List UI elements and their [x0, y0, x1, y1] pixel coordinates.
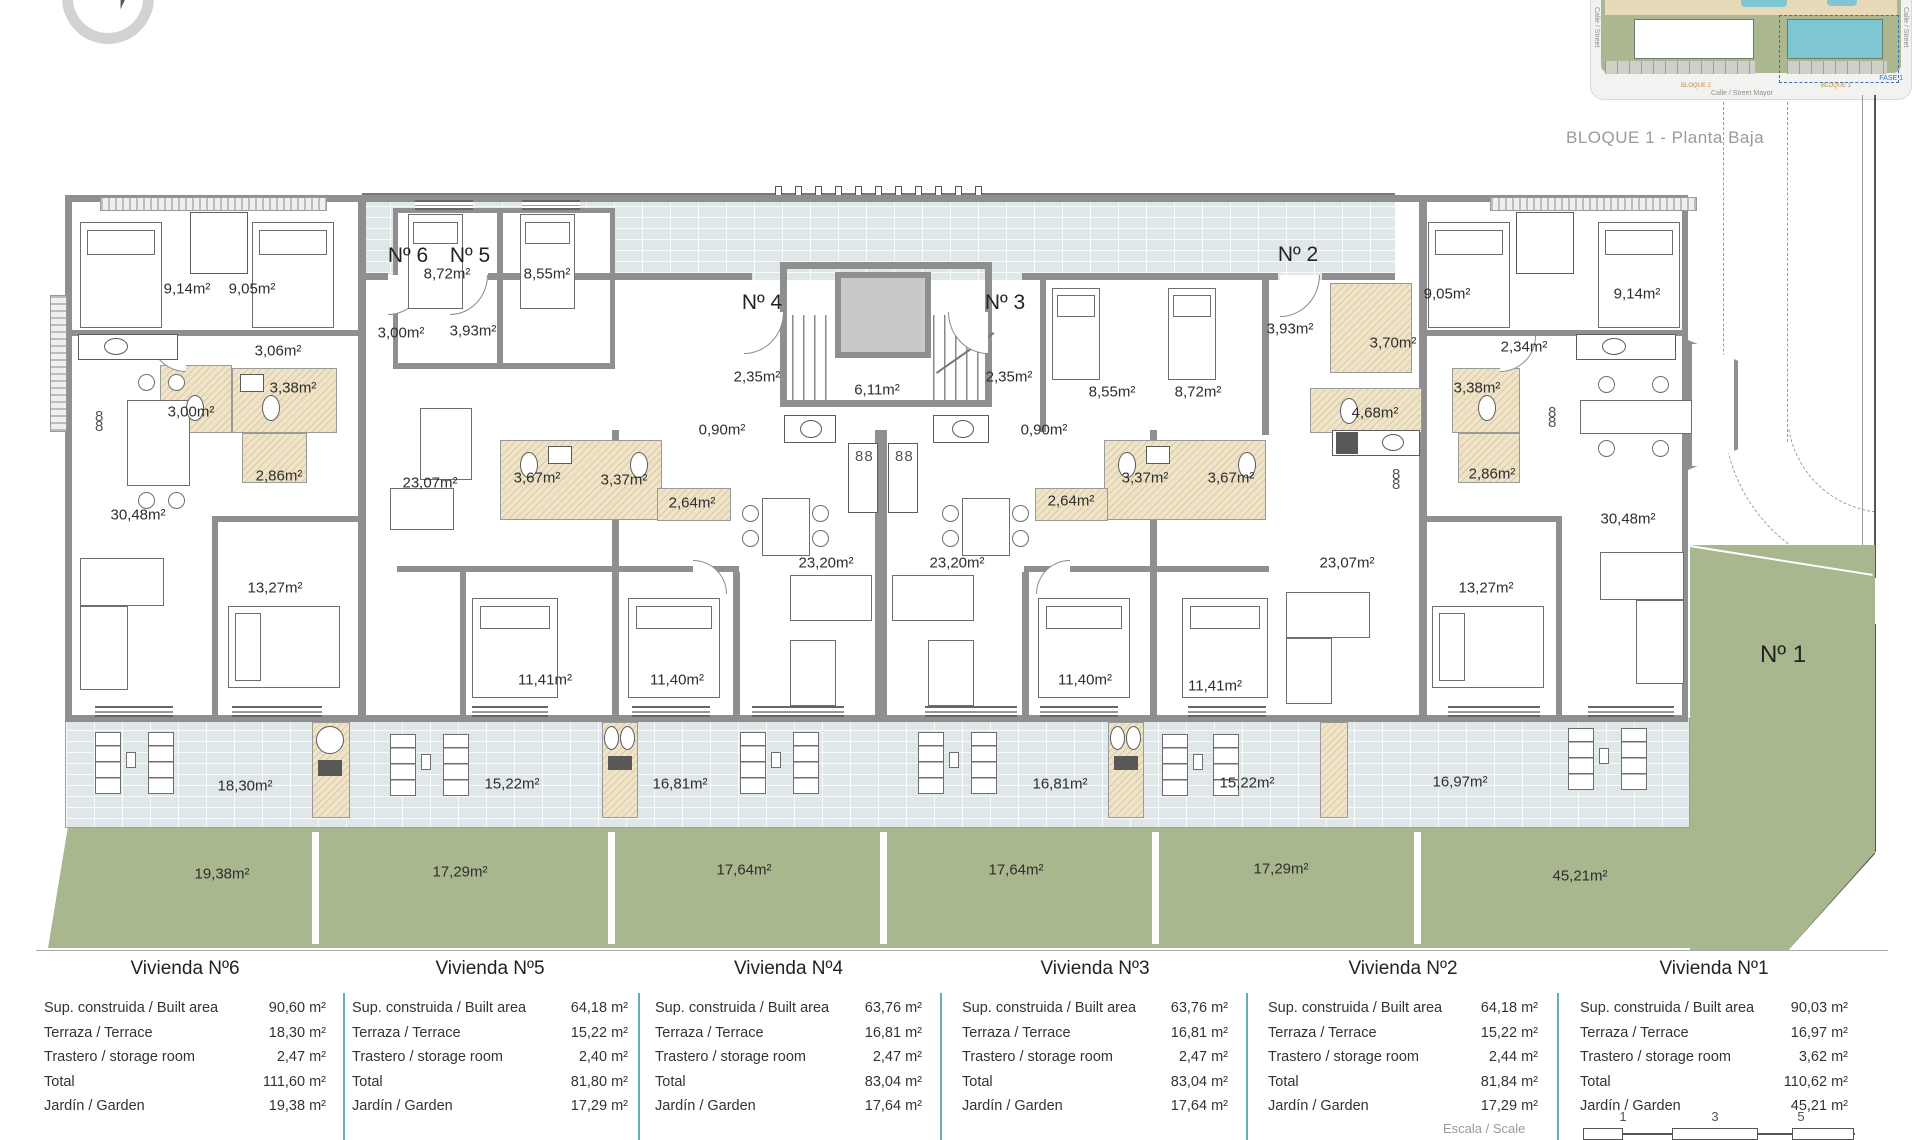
divider-line: [36, 950, 1888, 951]
table-row: Terraza / Terrace18,30 m²: [44, 1021, 326, 1046]
table-column-header: Vivienda Nº2: [1268, 958, 1538, 980]
table-row: Jardín / Garden17,64 m²: [962, 1094, 1228, 1119]
bloque1-label: BLOQUE 1: [1821, 83, 1851, 89]
street-left-label: Calle / Street: [1593, 7, 1600, 47]
bed: [1432, 606, 1544, 688]
road-dashed-line: [1787, 102, 1788, 442]
room-area-label: 11,41m²: [1188, 678, 1242, 695]
row-value: 81,84 m²: [1481, 1070, 1538, 1095]
table-row: Trastero / storage room3,62 m²: [1580, 1045, 1848, 1070]
scale-segment: [1672, 1128, 1758, 1140]
room-area-label: 3,67m²: [1208, 470, 1255, 487]
shutter-band: [1490, 197, 1697, 211]
row-label: Jardín / Garden: [1268, 1094, 1369, 1119]
scale-label: Escala / Scale: [1443, 1121, 1525, 1136]
room-area-label: 30,48m²: [1600, 511, 1655, 528]
bay-window: [1688, 340, 1738, 470]
room-area-label: 16,81m²: [1032, 776, 1087, 793]
row-value: 15,22 m²: [571, 1021, 628, 1046]
wall: [212, 522, 218, 715]
row-value: 2,47 m²: [873, 1045, 922, 1070]
table-row: Jardín / Garden19,38 m²: [44, 1094, 326, 1119]
row-value: 83,04 m²: [865, 1070, 922, 1095]
wall: [1022, 273, 1278, 280]
room-area-label: 0,90m²: [1021, 422, 1068, 439]
table-row: Trastero / storage room2,44 m²: [1268, 1045, 1538, 1070]
wall: [615, 566, 739, 572]
sofa: [80, 606, 128, 690]
row-value: 83,04 m²: [1171, 1070, 1228, 1095]
appliance-icon: [1114, 756, 1138, 770]
washer-icon: [1126, 726, 1141, 750]
row-value: 64,18 m²: [571, 996, 628, 1021]
unit-number-label: Nº 1: [1760, 641, 1806, 669]
street-right-label: Calle / Street: [1902, 7, 1909, 47]
row-value: 17,29 m²: [571, 1094, 628, 1119]
appliance-icon: [318, 760, 342, 776]
table-column-header: Vivienda Nº6: [44, 958, 326, 980]
table-divider: [1557, 993, 1559, 1140]
table-row: Sup. construida / Built area64,18 m²: [1268, 996, 1538, 1021]
row-label: Trastero / storage room: [962, 1045, 1113, 1070]
table-row: Jardín / Garden17,29 m²: [1268, 1094, 1538, 1119]
window: [1040, 706, 1118, 717]
row-label: Jardín / Garden: [352, 1094, 453, 1119]
table-row: Jardín / Garden17,64 m²: [655, 1094, 922, 1119]
room-area-label: 8,72m²: [1175, 384, 1222, 401]
unit-number-label: Nº 2: [1278, 243, 1318, 267]
floorplan-sheet: FASE 1 BLOQUE 2 BLOQUE 1 Calle / Street …: [0, 0, 1920, 1140]
bed: [1168, 288, 1216, 380]
basin-icon: [240, 374, 264, 392]
cooktop-icon: 88: [95, 412, 104, 432]
table-row: Trastero / storage room2,40 m²: [352, 1045, 628, 1070]
table-divider: [1246, 993, 1248, 1140]
table-column-header: Vivienda Nº4: [655, 958, 922, 980]
wall: [1322, 273, 1395, 280]
room-area-label: 6,11m²: [854, 382, 900, 399]
row-label: Sup. construida / Built area: [1268, 996, 1442, 1021]
sofa: [790, 640, 836, 706]
row-value: 16,81 m²: [1171, 1021, 1228, 1046]
pool-shape: [1741, 0, 1787, 7]
wall: [1157, 566, 1269, 572]
row-label: Sup. construida / Built area: [1580, 996, 1754, 1021]
window: [1188, 706, 1266, 717]
washer-icon: [1110, 726, 1125, 750]
bed: [1598, 222, 1680, 328]
garden-right-wrap: [1690, 545, 1875, 950]
cooktop-icon: 88: [855, 452, 874, 462]
wall: [1419, 202, 1427, 715]
window: [95, 706, 173, 717]
table-row: Total81,84 m²: [1268, 1070, 1538, 1095]
room-area-label: 2,34m²: [1501, 339, 1548, 356]
room-area-label: 19,38m²: [194, 866, 249, 883]
row-label: Trastero / storage room: [44, 1045, 195, 1070]
toilet-icon: [1478, 395, 1496, 421]
room-area-label: 3,38m²: [1454, 380, 1501, 397]
wall: [1556, 522, 1562, 715]
cooktop-icon: 88: [1548, 408, 1557, 428]
row-value: 17,29 m²: [1481, 1094, 1538, 1119]
table-column-header: Vivienda Nº3: [962, 958, 1228, 980]
row-label: Terraza / Terrace: [1580, 1021, 1689, 1046]
room-area-label: 13,27m²: [247, 580, 302, 597]
room-area-label: 3,00m²: [168, 404, 215, 421]
table-row: Terraza / Terrace16,81 m²: [655, 1021, 922, 1046]
bed: [80, 222, 162, 328]
washer-icon: [620, 726, 635, 750]
room-area-label: 9,05m²: [229, 281, 276, 298]
table-column: Vivienda Nº6Sup. construida / Built area…: [44, 958, 326, 1119]
kitchen-counter: [1576, 334, 1676, 360]
wall: [362, 273, 388, 280]
sofa: [892, 575, 974, 621]
table-row: Total111,60 m²: [44, 1070, 326, 1095]
scale-segment: [1583, 1128, 1623, 1140]
room-area-label: 23,20m²: [929, 555, 984, 572]
row-value: 2,40 m²: [579, 1045, 628, 1070]
row-label: Trastero / storage room: [1580, 1045, 1731, 1070]
wall: [460, 572, 466, 715]
scale-tick-label: 5: [1797, 1109, 1804, 1124]
table-column: Vivienda Nº4Sup. construida / Built area…: [655, 958, 922, 1119]
row-label: Terraza / Terrace: [352, 1021, 461, 1046]
scale-tick-label: 3: [1711, 1109, 1718, 1124]
sofa: [1286, 638, 1332, 704]
scale-tick-label: 1: [1619, 1109, 1626, 1124]
wardrobe: [190, 212, 248, 274]
row-label: Jardín / Garden: [44, 1094, 145, 1119]
sink-icon: [800, 420, 822, 438]
wall: [1022, 572, 1029, 715]
room-area-label: 11,41m²: [518, 672, 572, 689]
room-area-label: 23,07m²: [1319, 555, 1374, 572]
row-value: 16,81 m²: [865, 1021, 922, 1046]
table-divider: [638, 993, 640, 1140]
bed: [228, 606, 340, 688]
row-value: 90,03 m²: [1791, 996, 1848, 1021]
row-value: 3,62 m²: [1799, 1045, 1848, 1070]
washer-icon: [604, 726, 619, 750]
sink-icon: [1382, 434, 1404, 451]
fridge-icon: [1336, 432, 1358, 454]
row-value: 17,64 m²: [865, 1094, 922, 1119]
garden-divider: [1414, 832, 1421, 944]
unit-number-label: Nº 3: [985, 291, 1025, 315]
elevator: [835, 272, 931, 358]
table-row: Sup. construida / Built area63,76 m²: [962, 996, 1228, 1021]
row-label: Sup. construida / Built area: [352, 996, 526, 1021]
window: [632, 706, 710, 717]
room-area-label: 16,97m²: [1432, 774, 1487, 791]
table-row: Trastero / storage room2,47 m²: [962, 1045, 1228, 1070]
table-row: Total110,62 m²: [1580, 1070, 1848, 1095]
row-value: 63,76 m²: [1171, 996, 1228, 1021]
row-value: 15,22 m²: [1481, 1021, 1538, 1046]
pool-shape: [1827, 0, 1857, 6]
row-label: Total: [1268, 1070, 1299, 1095]
wall: [1262, 280, 1269, 435]
row-value: 18,30 m²: [269, 1021, 326, 1046]
row-label: Jardín / Garden: [655, 1094, 756, 1119]
table-row: Trastero / storage room2,47 m²: [655, 1045, 922, 1070]
wall: [1426, 516, 1562, 522]
room-area-label: 11,40m²: [1058, 672, 1112, 689]
window: [522, 200, 580, 210]
site-location-inset: FASE 1 BLOQUE 2 BLOQUE 1 Calle / Street …: [1590, 0, 1912, 100]
wardrobe: [1516, 212, 1574, 274]
dining-table: [762, 498, 810, 556]
room-area-label: 3,00m²: [378, 325, 425, 342]
page-title: BLOQUE 1 - Planta Baja: [1566, 128, 1764, 148]
room-area-label: 15,22m²: [484, 776, 539, 793]
room-area-label: 3,93m²: [450, 323, 497, 340]
room-area-label: 17,29m²: [1253, 861, 1308, 878]
basin-icon: [548, 446, 572, 464]
table-column: Vivienda Nº2Sup. construida / Built area…: [1268, 958, 1538, 1119]
bloque2-label: BLOQUE 2: [1681, 83, 1711, 89]
dining-table: [962, 498, 1010, 556]
unit-number-label: Nº 4: [742, 291, 782, 315]
room-area-label: 2,35m²: [986, 369, 1033, 386]
table-column: Vivienda Nº5Sup. construida / Built area…: [352, 958, 628, 1119]
row-value: 19,38 m²: [269, 1094, 326, 1119]
table-row: Sup. construida / Built area64,18 m²: [352, 996, 628, 1021]
room-area-label: 2,64m²: [669, 495, 716, 512]
row-label: Sup. construida / Built area: [655, 996, 829, 1021]
sofa: [1286, 592, 1370, 638]
row-label: Total: [1580, 1070, 1611, 1095]
room-area-label: 9,05m²: [1424, 286, 1471, 303]
window: [1588, 706, 1674, 717]
garden-divider: [880, 832, 887, 944]
toilet-icon: [262, 395, 280, 421]
table-column-header: Vivienda Nº5: [352, 958, 628, 980]
sofa: [1636, 600, 1684, 684]
table-row: Total83,04 m²: [655, 1070, 922, 1095]
row-label: Total: [352, 1070, 383, 1095]
sofa: [790, 575, 872, 621]
table-row: Jardín / Garden17,29 m²: [352, 1094, 628, 1119]
room-area-label: 18,30m²: [217, 778, 272, 795]
sofa: [928, 640, 974, 706]
room-area-label: 8,72m²: [424, 266, 471, 283]
kitchen-counter: [78, 334, 178, 360]
row-value: 2,47 m²: [1179, 1045, 1228, 1070]
room-area-label: 3,37m²: [1122, 470, 1169, 487]
core-wall: [780, 262, 992, 269]
room-area-label: 30,48m²: [110, 507, 165, 524]
shutter-band: [100, 197, 327, 211]
row-label: Trastero / storage room: [352, 1045, 503, 1070]
sofa: [80, 558, 164, 606]
cooktop-icon: 88: [1392, 470, 1401, 490]
room-area-label: 2,86m²: [256, 468, 303, 485]
room-area-label: 9,14m²: [164, 281, 211, 298]
bed: [520, 214, 575, 309]
wall: [397, 566, 615, 572]
dining-table: [420, 408, 472, 480]
row-value: 64,18 m²: [1481, 996, 1538, 1021]
room-area-label: 3,37m²: [601, 472, 648, 489]
dining-table: [1580, 400, 1692, 434]
table-column: Vivienda Nº3Sup. construida / Built area…: [962, 958, 1228, 1119]
garden-divider: [1152, 832, 1159, 944]
table-divider: [343, 993, 345, 1140]
row-label: Trastero / storage room: [1268, 1045, 1419, 1070]
room-area-label: 23,20m²: [798, 555, 853, 572]
wall: [733, 572, 740, 715]
table-row: Sup. construida / Built area63,76 m²: [655, 996, 922, 1021]
scale-segment: [1792, 1128, 1854, 1140]
garden-divider: [608, 832, 615, 944]
bed: [252, 222, 334, 328]
sink-icon: [1602, 338, 1626, 355]
room-area-label: 13,27m²: [1458, 580, 1513, 597]
sink-icon: [104, 338, 128, 355]
row-value: 111,60 m²: [263, 1070, 326, 1095]
row-label: Terraza / Terrace: [44, 1021, 153, 1046]
inset-block-2: [1634, 19, 1754, 59]
north-compass-icon: [62, 0, 154, 44]
room-area-label: 8,55m²: [524, 266, 571, 283]
row-label: Total: [655, 1070, 686, 1095]
wall: [393, 363, 615, 369]
room-area-label: 23,07m²: [402, 475, 457, 492]
window: [752, 706, 844, 717]
core-wall: [780, 400, 992, 407]
kitchen-floor: [1330, 283, 1412, 373]
room-area-label: 3,38m²: [270, 380, 317, 397]
room-area-label: 3,67m²: [514, 470, 561, 487]
window: [925, 706, 1017, 717]
sofa: [1600, 552, 1684, 600]
row-label: Terraza / Terrace: [655, 1021, 764, 1046]
room-area-label: 45,21m²: [1552, 868, 1607, 885]
row-value: 90,60 m²: [269, 996, 326, 1021]
row-label: Jardín / Garden: [1580, 1094, 1681, 1119]
table-divider: [940, 993, 942, 1140]
table-row: Terraza / Terrace16,97 m²: [1580, 1021, 1848, 1046]
table-column-header: Vivienda Nº1: [1580, 958, 1848, 980]
bed: [1052, 288, 1100, 380]
table-row: Total81,80 m²: [352, 1070, 628, 1095]
room-area-label: 3,70m²: [1370, 335, 1417, 352]
sink-icon: [952, 420, 974, 438]
garden-divider: [312, 832, 319, 944]
room-area-label: 11,40m²: [650, 672, 704, 689]
row-label: Total: [962, 1070, 993, 1095]
row-label: Sup. construida / Built area: [44, 996, 218, 1021]
room-area-label: 3,93m²: [1267, 321, 1314, 338]
table-row: Terraza / Terrace15,22 m²: [352, 1021, 628, 1046]
wall: [212, 516, 362, 522]
storage-room: [1320, 722, 1348, 818]
row-value: 81,80 m²: [571, 1070, 628, 1095]
row-label: Jardín / Garden: [962, 1094, 1063, 1119]
row-label: Sup. construida / Built area: [962, 996, 1136, 1021]
washer-icon: [316, 726, 344, 754]
room-area-label: 2,64m²: [1048, 493, 1095, 510]
table-row: Trastero / storage room2,47 m²: [44, 1045, 326, 1070]
row-label: Trastero / storage room: [655, 1045, 806, 1070]
inset-parking: [1605, 61, 1755, 74]
row-label: Total: [44, 1070, 75, 1095]
garden-strip: [48, 828, 1690, 948]
bed: [1428, 222, 1510, 328]
table-row: Total83,04 m²: [962, 1070, 1228, 1095]
row-value: 16,97 m²: [1791, 1021, 1848, 1046]
row-value: 2,44 m²: [1489, 1045, 1538, 1070]
room-area-label: 16,81m²: [652, 776, 707, 793]
table-row: Terraza / Terrace16,81 m²: [962, 1021, 1228, 1046]
room-area-label: 8,55m²: [1089, 384, 1136, 401]
window: [232, 706, 322, 717]
wall: [497, 208, 503, 368]
room-area-label: 2,35m²: [734, 369, 781, 386]
row-value: 2,47 m²: [277, 1045, 326, 1070]
unit-number-label: Nº 6: [388, 244, 428, 268]
row-label: Terraza / Terrace: [1268, 1021, 1377, 1046]
appliance-icon: [608, 756, 632, 770]
room-area-label: 3,06m²: [255, 343, 302, 360]
compass-needle-icon: [110, 0, 135, 10]
fase-boundary: [1779, 15, 1899, 83]
stair-treads: [792, 315, 836, 401]
table-row: Sup. construida / Built area90,03 m²: [1580, 996, 1848, 1021]
row-value: 17,64 m²: [1171, 1094, 1228, 1119]
room-area-label: 17,29m²: [432, 864, 487, 881]
room-area-label: 15,22m²: [1219, 775, 1274, 792]
wall: [1040, 280, 1046, 432]
sofa: [390, 488, 454, 530]
room-area-label: 9,14m²: [1614, 286, 1661, 303]
room-area-label: 4,68m²: [1352, 405, 1399, 422]
table-column: Vivienda Nº1Sup. construida / Built area…: [1580, 958, 1848, 1119]
cooktop-icon: 88: [895, 452, 914, 462]
room-area-label: 2,86m²: [1469, 466, 1516, 483]
street-mayor-label: Calle / Street Mayor: [1711, 90, 1773, 97]
row-value: 110,62 m²: [1784, 1070, 1848, 1095]
core-wall: [780, 262, 787, 407]
louver-screen: [50, 295, 67, 432]
room-area-label: 17,64m²: [988, 862, 1043, 879]
row-label: Terraza / Terrace: [962, 1021, 1071, 1046]
room-area-label: 17,64m²: [716, 862, 771, 879]
unit-number-label: Nº 5: [450, 244, 490, 268]
table-row: Sup. construida / Built area90,60 m²: [44, 996, 326, 1021]
room-area-label: 0,90m²: [699, 422, 746, 439]
fase-label: FASE 1: [1879, 75, 1903, 82]
table-row: Terraza / Terrace15,22 m²: [1268, 1021, 1538, 1046]
window: [472, 706, 548, 717]
basin-icon: [1146, 446, 1170, 464]
window: [1448, 706, 1540, 717]
window: [415, 200, 473, 210]
row-value: 63,76 m²: [865, 996, 922, 1021]
